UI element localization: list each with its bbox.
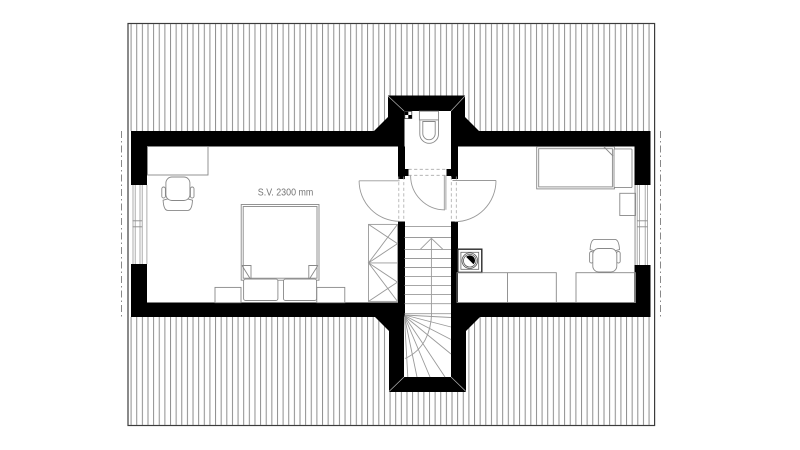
svg-text:S.V. 2300 mm: S.V. 2300 mm <box>258 187 314 198</box>
